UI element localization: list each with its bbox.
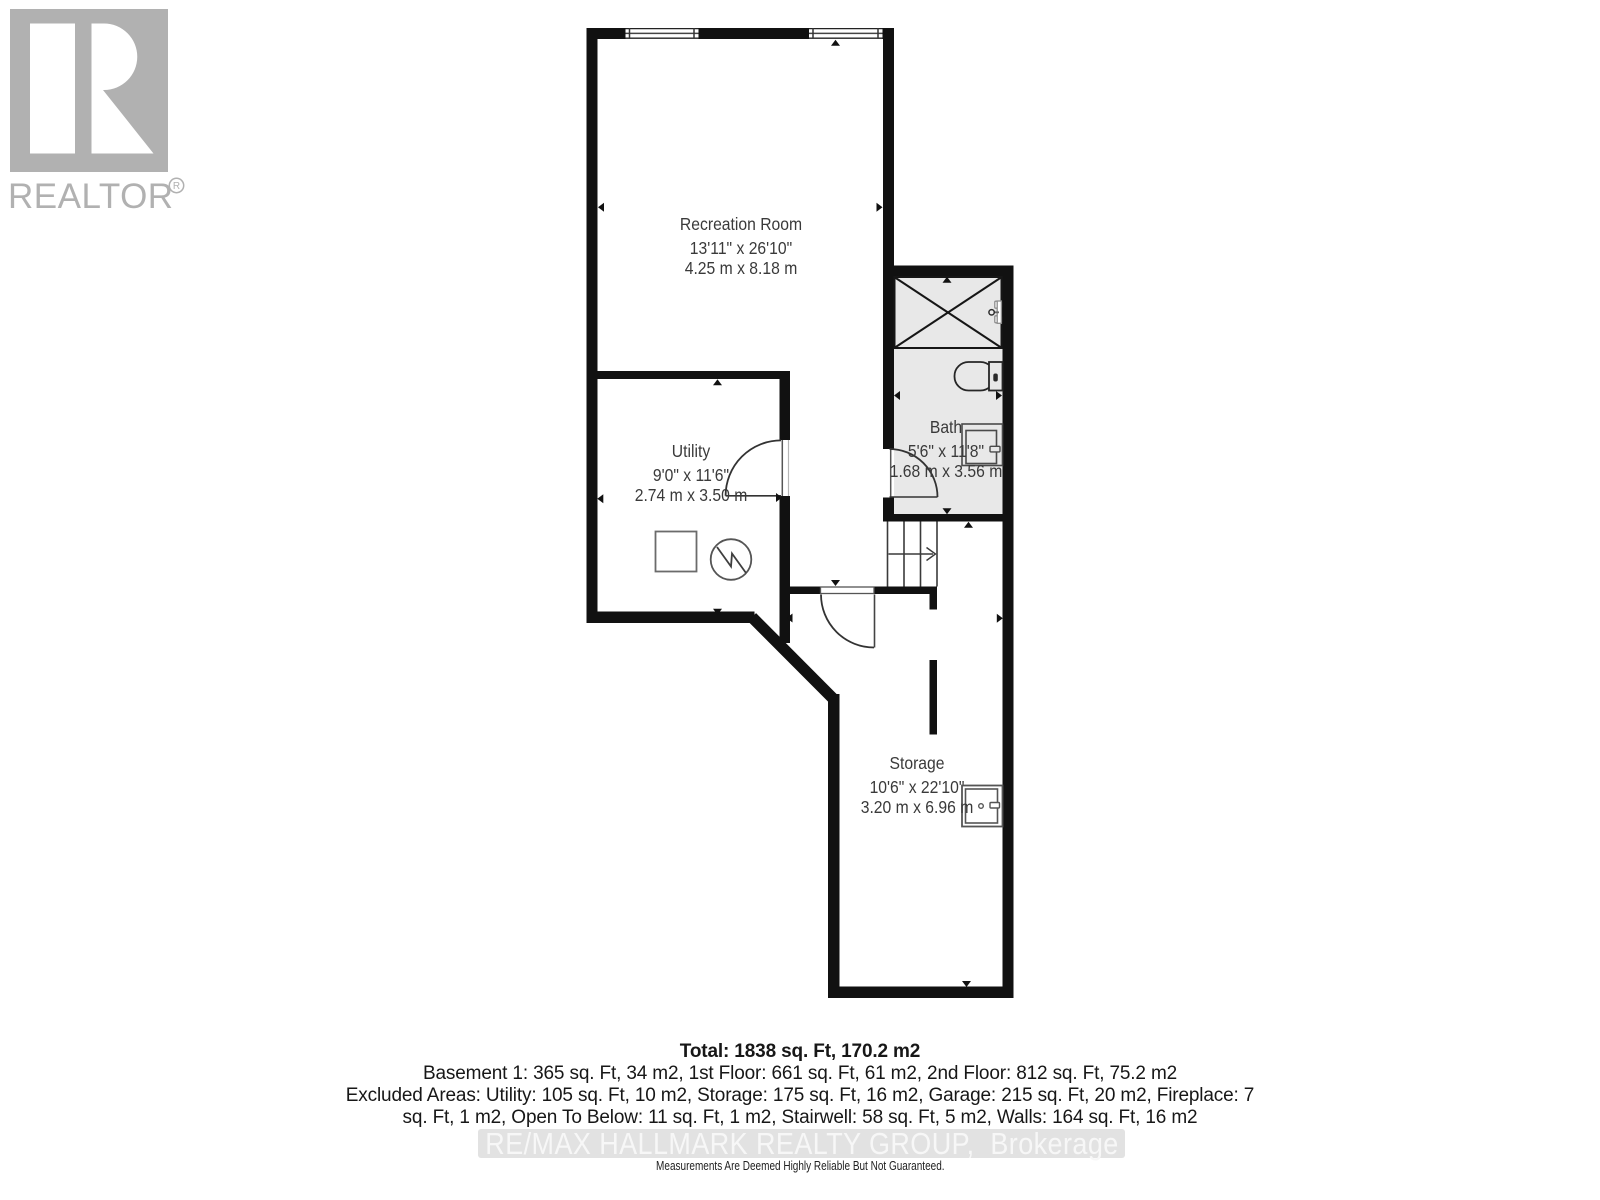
svg-text:R: R bbox=[173, 181, 180, 192]
svg-text:REALTOR: REALTOR bbox=[8, 177, 174, 216]
